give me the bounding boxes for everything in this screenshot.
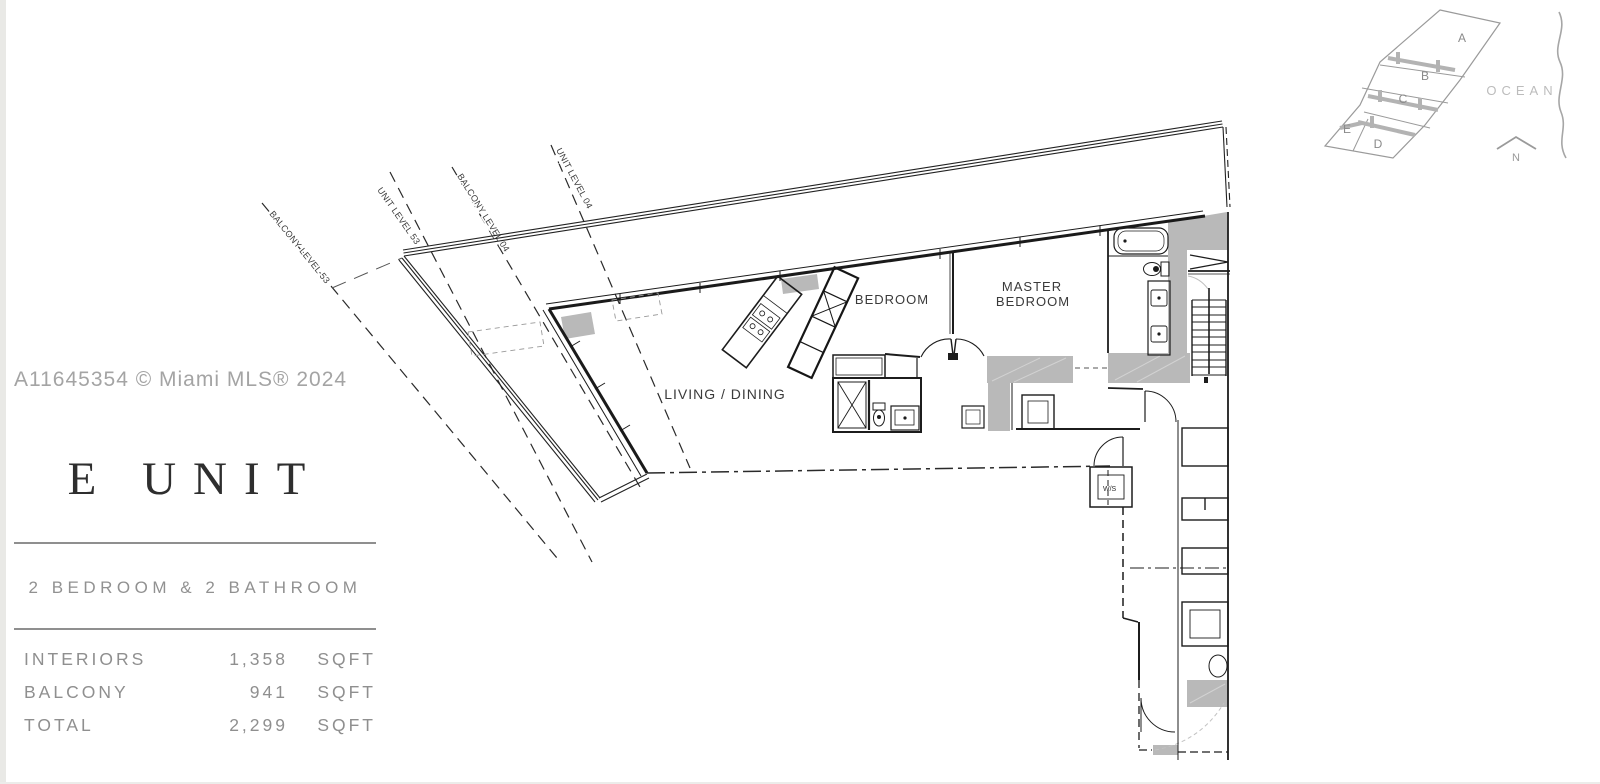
area-label: TOTAL [14,715,188,736]
wall-masterbath-band [1108,353,1190,383]
bedroom-partition-doors [921,251,984,360]
bedroom-bath-block [833,354,921,432]
staircase [1188,255,1230,383]
unit-lower-boundary [647,466,1110,473]
reference-connector [332,258,402,288]
area-row-total: TOTAL 2,299 SQFT [14,714,376,736]
key-map-unit-b: B [1421,69,1429,83]
key-map: A B C D E OCEAN N [1325,10,1566,164]
key-map-corridors [1340,52,1455,135]
area-value: 1,358 [188,649,288,670]
ocean-label: OCEAN [1486,83,1557,98]
ref-label-unit-53: UNIT LEVEL 53 [375,185,422,246]
shoreline-wave [1558,12,1566,158]
floorplan-page: { "watermark_text": "A11645354 © Miami M… [0,0,1600,784]
wall-foyer-stub [988,383,1010,431]
wall-foyer-band [987,356,1073,383]
room-label-living-dining: LIVING / DINING [664,386,786,402]
room-label-master-1: MASTER [1002,279,1062,294]
room-label-bedroom: BEDROOM [855,292,929,307]
north-arrow-icon [1497,137,1536,149]
area-table: INTERIORS 1,358 SQFT BALCONY 941 SQFT TO… [14,648,376,736]
key-map-unit-e: E [1343,122,1351,136]
ref-label-balcony-53: BALCONY LEVEL 53 [267,209,332,286]
room-label-master-2: BEDROOM [996,294,1070,309]
key-map-unit-c: C [1399,92,1408,106]
area-unit: SQFT [288,649,376,670]
unit-subtitle: 2 BEDROOM & 2 BATHROOM [14,578,376,598]
area-unit: SQFT [288,682,376,703]
area-label: BALCONY [14,682,188,703]
area-value: 2,299 [188,715,288,736]
area-label: INTERIORS [14,649,188,670]
wall-hatching [992,356,1225,703]
area-unit: SQFT [288,715,376,736]
north-label: N [1512,152,1520,164]
ref-label-balcony-04: BALCONY LEVEL 04 [455,172,511,254]
area-row-interiors: INTERIORS 1,358 SQFT [14,648,376,670]
unit-glass-walls [543,211,1205,476]
divider-line-top [14,542,376,544]
master-bathroom [1075,228,1170,368]
divider-line-bottom [14,628,376,630]
utility-closet-label: W/S [1103,486,1117,493]
key-map-dividers [1353,65,1465,151]
area-row-balcony: BALCONY 941 SQFT [14,681,376,703]
area-value: 941 [188,682,288,703]
title-block: E UNIT 2 BEDROOM & 2 BATHROOM INTERIORS … [14,452,376,762]
key-map-unit-a: A [1458,31,1466,45]
key-map-unit-d: D [1374,137,1383,151]
reference-line-labels: BALCONY LEVEL 53 UNIT LEVEL 53 BALCONY L… [267,146,594,285]
mls-watermark: A11645354 © Miami MLS® 2024 [14,368,347,392]
unit-title: E UNIT [14,452,376,506]
